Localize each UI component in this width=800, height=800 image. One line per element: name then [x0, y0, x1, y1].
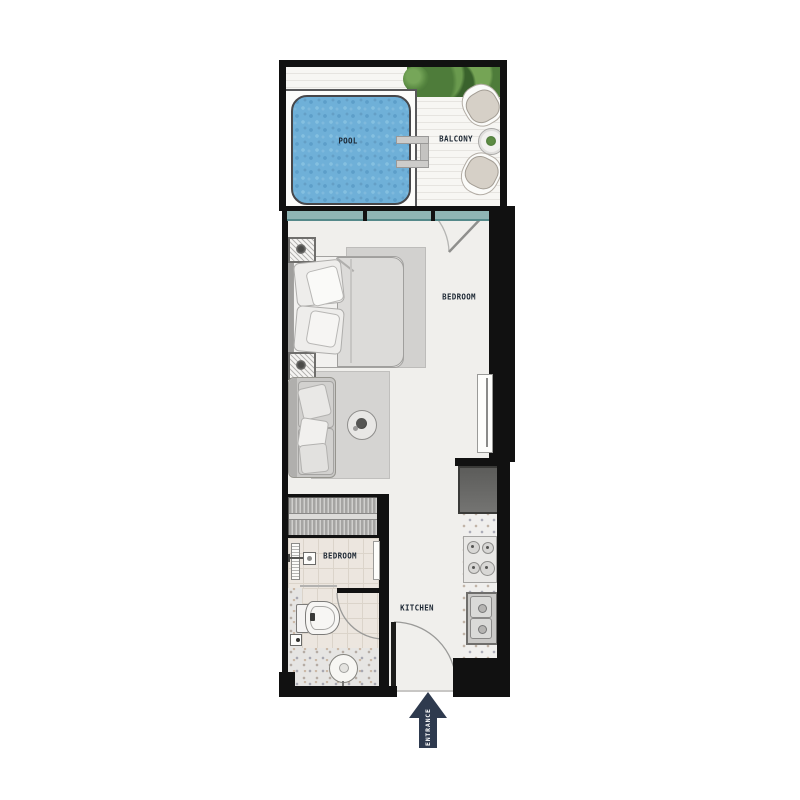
- shower-pipe: [288, 557, 304, 559]
- wardrobe-rail: [289, 513, 378, 520]
- toilet: [305, 601, 340, 635]
- shower-room-floor: [288, 538, 379, 588]
- balcony-top-wall: [279, 60, 507, 67]
- bathroom-label: BEDROOM: [323, 552, 357, 561]
- sink-basin: [470, 596, 492, 618]
- plant-icon: [296, 244, 306, 254]
- plant-icon: [296, 360, 306, 370]
- drain-icon: [478, 625, 487, 634]
- wardrobe-right-wall: [377, 494, 389, 538]
- window-mullion: [431, 211, 435, 221]
- entrance-door-arc: [390, 615, 460, 690]
- burner-dot: [471, 545, 474, 548]
- bottom-right-wall: [453, 658, 510, 697]
- wardrobe-top-wall: [288, 494, 389, 497]
- drain-icon: [478, 604, 487, 613]
- pool: [291, 95, 411, 205]
- basin: [329, 654, 358, 683]
- entrance-arrow: ENTRANCE: [409, 692, 447, 748]
- stove: [463, 536, 497, 583]
- pocket-door-slot: [373, 541, 380, 580]
- burner-dot: [485, 566, 488, 569]
- balcony-right-wall: [500, 60, 507, 210]
- bed-blanket: [337, 257, 404, 367]
- paper-roll-dot: [296, 638, 300, 642]
- kitchen-sink: [466, 592, 498, 645]
- entrance-label: ENTRANCE: [424, 699, 432, 746]
- bedroom-label: BEDROOM: [442, 293, 476, 302]
- table-plant-icon: [486, 136, 496, 146]
- sofa-back: [289, 378, 297, 477]
- window-band: [287, 211, 489, 221]
- burner-dot: [472, 566, 475, 569]
- coffee-table: [347, 410, 377, 440]
- bed-cushion: [305, 310, 340, 349]
- balcony-left-wall: [279, 60, 286, 210]
- balcony-label: BALCONY: [439, 135, 473, 144]
- door-panel-line: [486, 378, 488, 447]
- nightstand: [288, 237, 316, 263]
- toilet-flush: [310, 613, 315, 621]
- kitchen-right-wall: [497, 458, 510, 658]
- nightstand: [288, 352, 316, 380]
- kitchen-label: KITCHEN: [400, 604, 434, 613]
- entrance-door-leaf: [391, 622, 396, 688]
- bottom-wall: [279, 686, 397, 697]
- burner-dot: [486, 546, 489, 549]
- sink-basin: [470, 618, 492, 639]
- sofa: [288, 377, 336, 478]
- wardrobe: [288, 497, 379, 537]
- table-decor-dot: [353, 426, 358, 431]
- blanket-crease: [350, 259, 352, 363]
- pool-ladder-rail: [396, 160, 429, 168]
- shower-head-dot: [307, 556, 312, 561]
- pool-label: POOL: [338, 137, 357, 146]
- pool-ladder-rail: [396, 136, 429, 144]
- window-mullion: [363, 211, 367, 221]
- left-wall: [282, 211, 288, 697]
- shower-head-icon: [303, 552, 316, 565]
- wardrobe-bottom-wall: [288, 535, 389, 538]
- fridge: [458, 466, 501, 514]
- floor-plan: POOL BALCONY BEDROOM: [0, 0, 800, 800]
- paper-holder-icon: [290, 634, 302, 646]
- bathroom-right-wall: [379, 535, 389, 697]
- shower-rail: [291, 543, 300, 580]
- sofa-pillow: [299, 443, 330, 475]
- fridge-top-wall: [455, 458, 497, 466]
- utility-door-panel: [477, 374, 493, 453]
- basin-drain-icon: [339, 663, 349, 673]
